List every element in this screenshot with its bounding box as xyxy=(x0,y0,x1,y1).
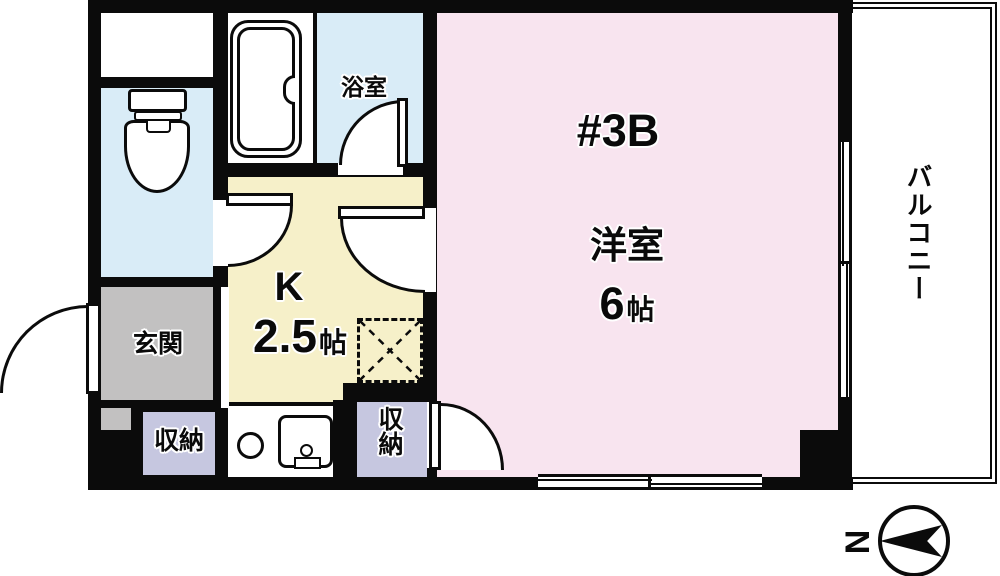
bathroom-label: 浴室 xyxy=(317,76,411,99)
sink-drain-icon xyxy=(300,444,313,457)
wall-toilet-bottom xyxy=(101,277,215,287)
storage-right-label: 収納 xyxy=(376,406,401,476)
window-center-tick xyxy=(648,477,651,487)
entrance-door-leaf xyxy=(86,303,101,394)
kitchen-door-leaf xyxy=(338,206,425,219)
opening-toilet-door xyxy=(213,200,228,266)
window-pane-line xyxy=(650,483,762,485)
window-pane-line xyxy=(538,479,652,481)
window-pane-line xyxy=(842,142,844,266)
unit-label: #3B xyxy=(518,108,718,153)
toilet-icon xyxy=(124,89,190,193)
entrance-step xyxy=(101,408,131,430)
bathtub-notch xyxy=(283,75,295,105)
main-room-label: 洋室 xyxy=(527,227,727,264)
entrance-label: 玄関 xyxy=(101,332,215,357)
main-door-leaf xyxy=(429,401,441,470)
main-room-size: 6帖 xyxy=(527,281,727,326)
wall-storage-top xyxy=(343,383,437,402)
main-room-size-value: 6 xyxy=(599,278,624,329)
wall-right-upper xyxy=(838,0,852,144)
opening-kitchen-main-door xyxy=(425,208,436,292)
toilet-bowl-notch xyxy=(146,121,171,133)
balcony-label: バルコニー xyxy=(905,163,931,308)
toilet-tank xyxy=(128,89,187,112)
south-window xyxy=(538,474,762,490)
kitchen-size-unit: 帖 xyxy=(319,327,347,358)
compass: N xyxy=(838,503,958,576)
wall-pillar xyxy=(800,430,852,490)
toilet-door-leaf xyxy=(226,193,293,206)
floor-plan: #3B 洋室 6帖 K 2.5帖 浴室 玄関 収納 収納 バルコニー N xyxy=(0,0,1000,576)
balcony-window xyxy=(838,142,852,397)
kitchen-label: K xyxy=(239,267,339,307)
storage-left-label: 収納 xyxy=(143,429,215,454)
sink-icon xyxy=(278,415,333,468)
wall-shaft-bottom xyxy=(101,77,228,88)
kitchen-size: 2.5帖 xyxy=(230,313,370,359)
bathtub-icon xyxy=(230,20,302,158)
wall-top xyxy=(88,0,853,13)
main-room-size-unit: 帖 xyxy=(627,294,655,325)
kitchen-size-value: 2.5 xyxy=(253,310,317,362)
window-center-tick xyxy=(841,261,849,264)
opening-entrance-kitchen xyxy=(221,287,229,408)
window-pane-line xyxy=(846,262,848,397)
entrance-door-arc xyxy=(0,305,88,393)
stove-burner-icon xyxy=(237,432,264,459)
room-shaft xyxy=(101,13,215,77)
bath-door-leaf xyxy=(397,98,408,167)
sink-tab xyxy=(294,457,321,469)
wall-counter-right xyxy=(333,400,357,477)
compass-north-label: N xyxy=(841,524,877,560)
